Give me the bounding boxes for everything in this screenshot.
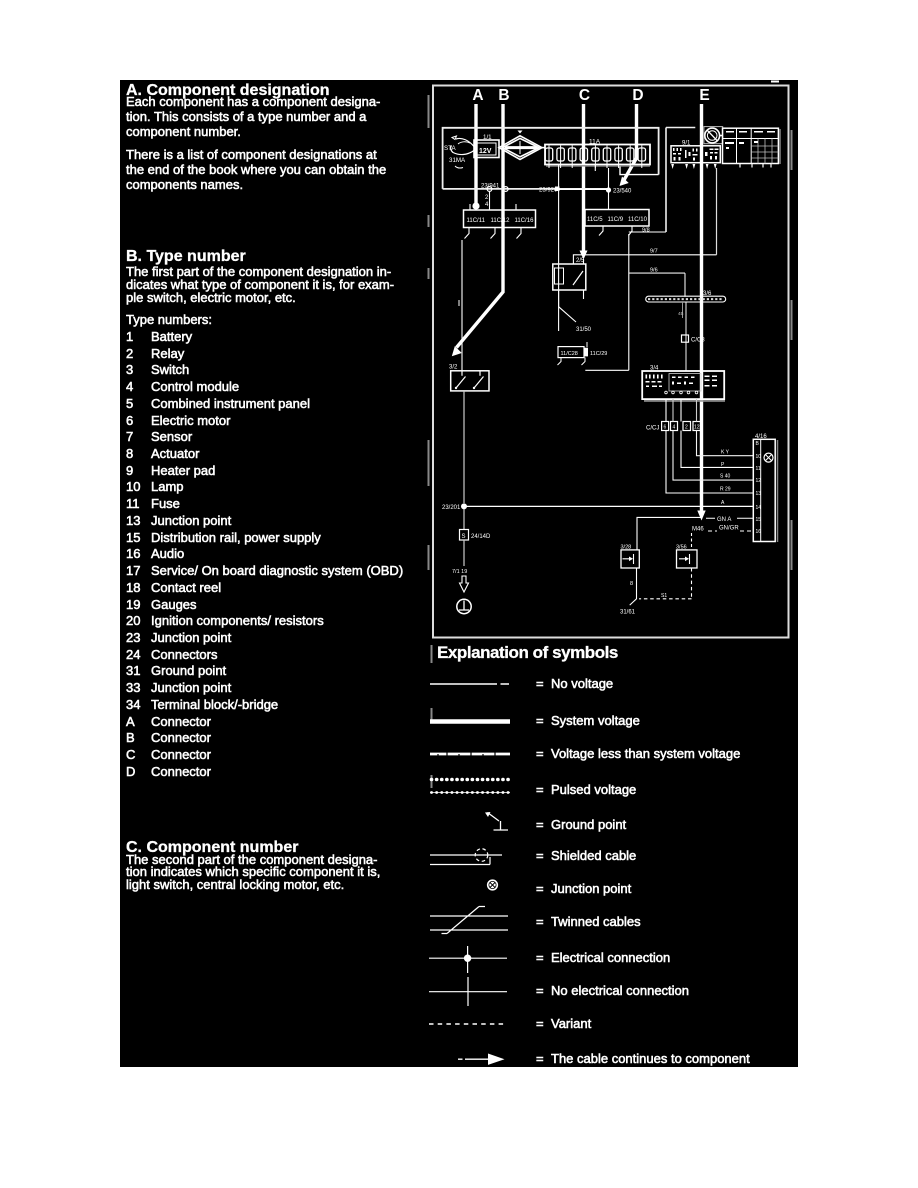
svg-text:4: 4: [485, 202, 489, 208]
svg-text:B: B: [498, 87, 509, 104]
svg-text:16: 16: [756, 529, 762, 535]
svg-text:E: E: [699, 87, 709, 104]
svg-text:12: 12: [756, 478, 762, 484]
svg-text:12V: 12V: [479, 148, 492, 155]
svg-text:23/540: 23/540: [613, 189, 632, 195]
svg-text:11A: 11A: [589, 139, 601, 146]
svg-text:M46: M46: [692, 527, 704, 533]
svg-text:9/8: 9/8: [642, 228, 650, 234]
svg-text:K Y: K Y: [721, 450, 730, 456]
svg-text:S: S: [462, 534, 466, 540]
svg-text:4B: 4B: [678, 311, 684, 316]
svg-text:11/C28: 11/C28: [561, 351, 578, 357]
svg-text:4/16: 4/16: [755, 434, 767, 440]
svg-text:A: A: [721, 500, 725, 506]
svg-text:3/28: 3/28: [621, 545, 632, 551]
svg-text:31MA: 31MA: [449, 157, 466, 164]
svg-text:11C/9: 11C/9: [608, 217, 624, 223]
svg-text:15: 15: [756, 517, 762, 523]
svg-text:2: 2: [485, 195, 489, 201]
svg-text:3/2: 3/2: [449, 365, 458, 371]
svg-text:3/56: 3/56: [676, 545, 687, 551]
svg-text:13: 13: [756, 491, 762, 497]
svg-text:STA: STA: [444, 145, 456, 152]
svg-text:3/6: 3/6: [703, 291, 712, 297]
svg-text:C/C3: C/C3: [691, 338, 705, 344]
svg-text:11C/5: 11C/5: [587, 217, 603, 223]
svg-text:11C/12: 11C/12: [491, 218, 511, 224]
svg-text:S 40: S 40: [720, 474, 731, 480]
svg-text:24/14D: 24/14D: [471, 534, 491, 540]
svg-text:GN A: GN A: [717, 517, 731, 523]
svg-text:GN/GR: GN/GR: [719, 526, 739, 532]
svg-text:C: C: [579, 87, 590, 104]
svg-text:10: 10: [756, 454, 762, 460]
svg-text:S1: S1: [661, 593, 667, 599]
svg-text:6: 6: [664, 425, 667, 431]
svg-text:31/50: 31/50: [576, 327, 592, 333]
svg-text:4: 4: [673, 425, 676, 431]
svg-text:11C/29: 11C/29: [590, 351, 607, 357]
svg-text:31/61: 31/61: [620, 610, 636, 616]
svg-text:14: 14: [756, 505, 762, 511]
svg-text:12: 12: [694, 425, 700, 431]
svg-text:11C/11: 11C/11: [467, 218, 486, 224]
svg-text:1/1: 1/1: [483, 134, 492, 141]
svg-text:7/1 19: 7/1 19: [452, 569, 467, 575]
svg-text:8: 8: [630, 581, 633, 587]
svg-text:11: 11: [756, 466, 761, 472]
svg-text:2: 2: [685, 425, 688, 431]
svg-text:3/4: 3/4: [650, 366, 659, 372]
svg-text:11C/10: 11C/10: [628, 217, 648, 223]
svg-text:C/CJ: C/CJ: [646, 426, 659, 432]
svg-text:D: D: [632, 87, 643, 104]
svg-text:A: A: [472, 87, 483, 104]
svg-text:B: B: [756, 441, 760, 447]
svg-text:9/1: 9/1: [682, 141, 691, 147]
svg-text:23/201: 23/201: [442, 505, 461, 511]
svg-text:9/6: 9/6: [650, 268, 658, 274]
svg-text:11C/16: 11C/16: [515, 218, 535, 224]
svg-text:9/7: 9/7: [650, 249, 658, 255]
svg-text:R 29: R 29: [720, 487, 731, 493]
